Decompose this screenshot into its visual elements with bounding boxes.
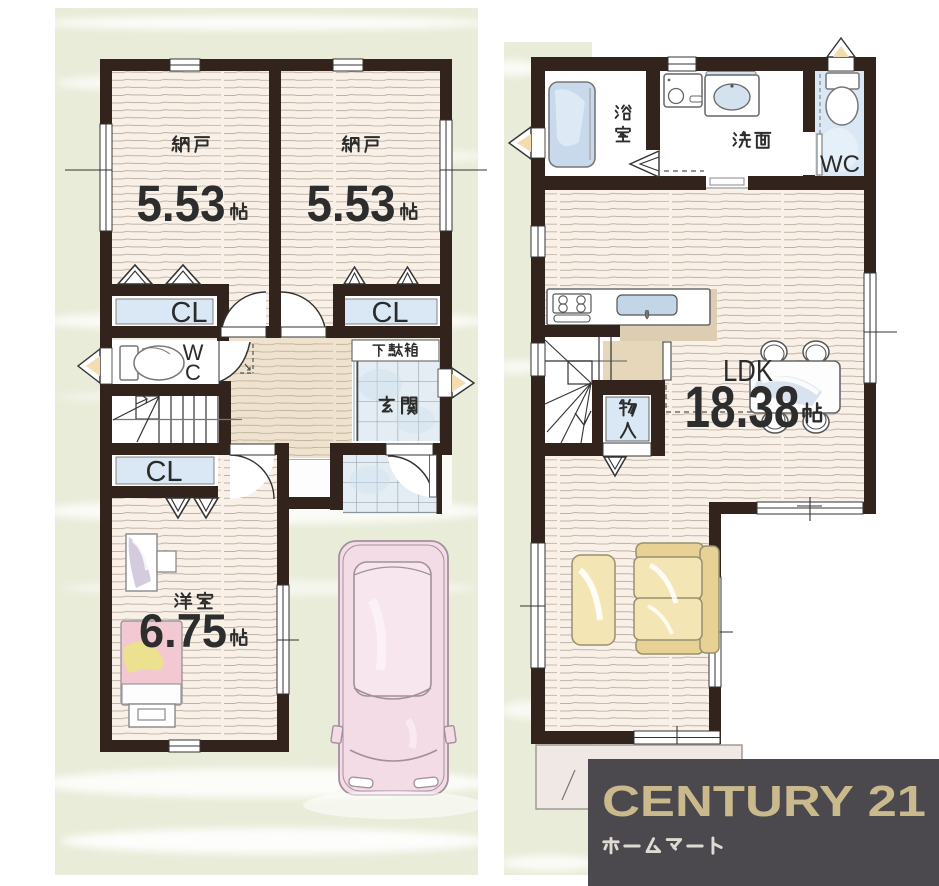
svg-text:C: C (185, 360, 201, 385)
svg-text:18.38: 18.38 (685, 375, 800, 440)
svg-text:CL: CL (145, 456, 182, 488)
svg-text:6.75: 6.75 (139, 604, 227, 657)
svg-text:WC: WC (820, 151, 860, 178)
svg-text:CENTURY 21: CENTURY 21 (602, 777, 926, 826)
svg-text:5.53: 5.53 (137, 175, 226, 232)
svg-text:CL: CL (371, 297, 408, 329)
svg-text:5.53: 5.53 (307, 175, 396, 232)
svg-text:CL: CL (170, 297, 207, 329)
